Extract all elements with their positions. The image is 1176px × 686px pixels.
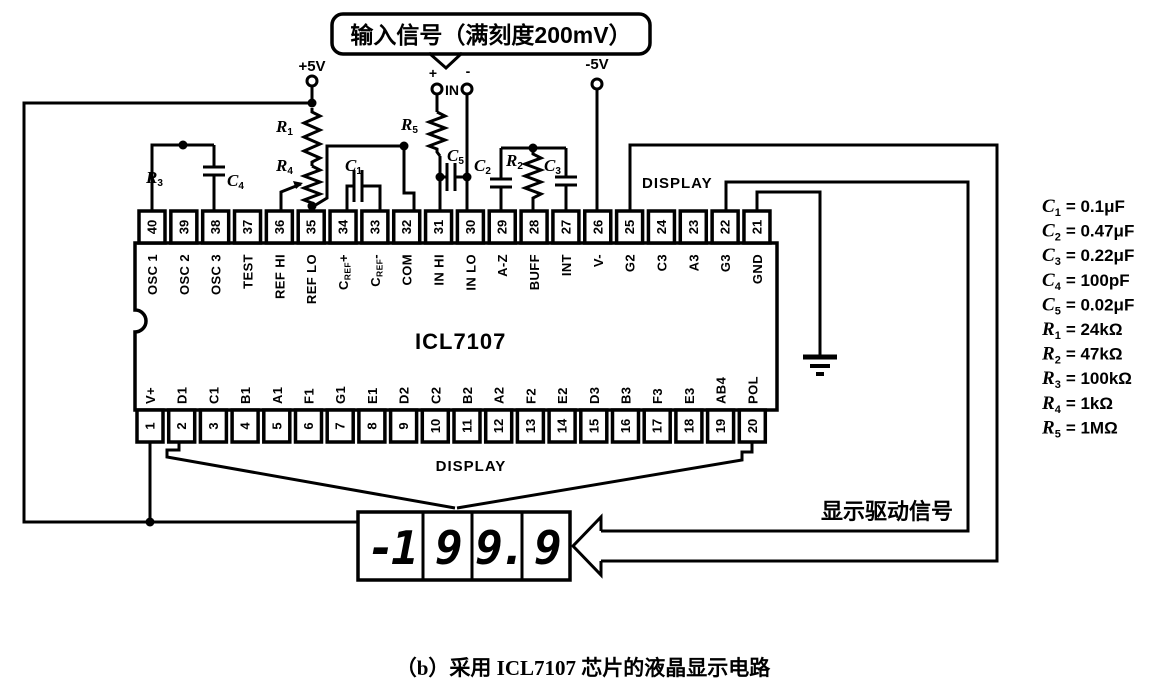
- svg-text:15: 15: [586, 419, 601, 433]
- junction-dot: [400, 142, 409, 151]
- svg-text:26: 26: [590, 220, 605, 234]
- svg-text:REF HI: REF HI: [272, 254, 287, 299]
- svg-text:E2: E2: [555, 387, 570, 404]
- svg-text:1: 1: [143, 422, 158, 429]
- svg-text:16: 16: [618, 419, 633, 433]
- value-row-c3: C3= 0.22μF: [1042, 245, 1134, 268]
- svg-text:23: 23: [686, 220, 701, 234]
- junction-dot: [308, 99, 317, 108]
- svg-text:C2: C2: [428, 387, 443, 404]
- value-row-r5: R5= 1MΩ: [1041, 417, 1118, 440]
- svg-text:B3: B3: [619, 387, 634, 404]
- ic-name: ICL7107: [415, 329, 506, 354]
- svg-text:D2: D2: [397, 387, 412, 404]
- ic-icl7107: ICL7107: [135, 243, 777, 410]
- svg-text:9: 9: [396, 422, 411, 429]
- svg-text:32: 32: [399, 220, 414, 234]
- svg-text:33: 33: [367, 220, 382, 234]
- svg-text:OSC 1: OSC 1: [145, 254, 160, 295]
- svg-text:COM: COM: [400, 254, 415, 286]
- display-digit-3: 9.: [475, 521, 522, 575]
- in-plus-label: +: [429, 65, 437, 81]
- svg-text:5: 5: [269, 422, 284, 429]
- svg-text:36: 36: [272, 220, 287, 234]
- svg-text:A2: A2: [492, 387, 507, 404]
- svg-text:F1: F1: [302, 388, 317, 404]
- svg-text:19: 19: [713, 419, 728, 433]
- svg-text:10: 10: [428, 419, 443, 433]
- plus5v-label: +5V: [298, 58, 325, 75]
- svg-text:D1: D1: [175, 387, 190, 404]
- svg-text:BUFF: BUFF: [527, 254, 542, 290]
- display-digit-2: 9: [435, 521, 461, 575]
- junction-dot: [146, 518, 155, 527]
- svg-text:OSC 2: OSC 2: [177, 254, 192, 295]
- svg-text:B2: B2: [460, 387, 475, 404]
- svg-text:G2: G2: [623, 254, 638, 272]
- label-r2: R2: [505, 151, 523, 172]
- wire-pin20-display: [457, 442, 752, 508]
- svg-text:B1: B1: [238, 387, 253, 404]
- junction-dot: [463, 173, 472, 182]
- label-r1: R1: [275, 117, 293, 138]
- value-row-r2: R2= 47kΩ: [1041, 344, 1122, 367]
- capacitor-c4: [203, 145, 225, 211]
- svg-text:V+: V+: [143, 387, 158, 404]
- svg-text:IN HI: IN HI: [432, 254, 447, 286]
- svg-text:4: 4: [238, 422, 253, 430]
- svg-text:GND: GND: [750, 254, 765, 284]
- in-label: IN: [445, 82, 459, 98]
- svg-text:14: 14: [555, 418, 570, 433]
- display-label-top: DISPLAY: [642, 175, 713, 192]
- ground-symbol-icon: [803, 357, 837, 374]
- junction-dot: [308, 202, 317, 211]
- wire-pin2-display: [167, 442, 455, 508]
- svg-text:E3: E3: [682, 387, 697, 404]
- in-minus-label: -: [466, 63, 471, 79]
- svg-text:C1: C1: [206, 387, 221, 404]
- figure-caption: （b）采用 ICL7107 芯片的液晶显示电路: [396, 656, 772, 680]
- svg-text:OSC 3: OSC 3: [209, 254, 224, 295]
- label-c2: C2: [474, 156, 491, 177]
- display-digit-1: -1: [367, 521, 414, 575]
- capacitor-c1: [347, 170, 380, 211]
- value-row-r4: R4= 1kΩ: [1041, 393, 1113, 416]
- label-c1: C1: [345, 156, 362, 177]
- in-minus-terminal-icon: [462, 84, 472, 94]
- svg-text:E1: E1: [365, 387, 380, 404]
- resistor-r2: [525, 148, 541, 211]
- component-values-list: C1= 0.1μFC2= 0.47μFC3= 0.22μFC4= 100pFC5…: [1041, 196, 1134, 440]
- svg-text:25: 25: [622, 220, 637, 234]
- circuit-diagram: 输入信号（满刻度200mV） +5V -5V + - IN: [0, 0, 1176, 686]
- display-digit-4: 9: [534, 521, 560, 575]
- svg-text:6: 6: [301, 422, 316, 429]
- svg-text:POL: POL: [745, 376, 760, 404]
- svg-text:A-Z: A-Z: [495, 254, 510, 277]
- svg-text:REF LO: REF LO: [304, 254, 319, 304]
- capacitor-c3: [555, 148, 577, 211]
- drive-signal-label: 显示驱动信号: [821, 499, 953, 524]
- svg-text:24: 24: [654, 219, 669, 234]
- svg-text:17: 17: [650, 419, 665, 433]
- resistor-r1: [304, 108, 320, 166]
- svg-text:20: 20: [745, 419, 760, 433]
- callout-label: 输入信号（满刻度200mV）: [350, 22, 631, 48]
- minus5v-label: -5V: [585, 56, 608, 73]
- label-c5: C5: [447, 146, 464, 167]
- svg-text:18: 18: [681, 419, 696, 433]
- svg-text:3: 3: [206, 422, 221, 429]
- svg-text:F3: F3: [650, 388, 665, 404]
- svg-text:30: 30: [463, 220, 478, 234]
- svg-text:35: 35: [304, 220, 319, 234]
- svg-text:28: 28: [527, 220, 542, 234]
- label-r3: R3: [145, 168, 163, 189]
- svg-text:34: 34: [336, 219, 351, 234]
- label-r4: R4: [275, 156, 293, 177]
- svg-text:A3: A3: [686, 254, 701, 271]
- svg-text:V-: V-: [591, 254, 606, 267]
- seven-segment-display: -1 9 9. 9: [358, 512, 570, 580]
- minus5v-terminal-icon: [592, 79, 602, 89]
- display-label-bottom: DISPLAY: [436, 458, 507, 475]
- ic-body: [135, 243, 777, 410]
- junction-dot: [179, 141, 188, 150]
- label-r5: R5: [400, 115, 418, 136]
- value-row-c4: C4= 100pF: [1042, 270, 1130, 293]
- svg-text:31: 31: [431, 220, 446, 234]
- svg-text:37: 37: [240, 220, 255, 234]
- value-row-r3: R3= 100kΩ: [1041, 368, 1132, 391]
- svg-text:A1: A1: [270, 387, 285, 404]
- svg-text:39: 39: [176, 220, 191, 234]
- value-row-c1: C1= 0.1μF: [1042, 196, 1125, 219]
- svg-text:22: 22: [718, 220, 733, 234]
- svg-text:TEST: TEST: [241, 254, 256, 289]
- drive-arrowhead-icon: [573, 517, 601, 575]
- svg-text:21: 21: [749, 220, 764, 234]
- svg-text:INT: INT: [559, 254, 574, 276]
- svg-text:40: 40: [145, 220, 160, 234]
- svg-text:27: 27: [558, 220, 573, 234]
- label-c3: C3: [544, 156, 561, 177]
- in-plus-terminal-icon: [432, 84, 442, 94]
- junction-dot: [529, 144, 538, 153]
- svg-text:AB4: AB4: [714, 376, 729, 404]
- svg-text:C3: C3: [654, 254, 669, 271]
- wire-com-drop: [404, 146, 414, 211]
- schematic-page: 输入信号（满刻度200mV） +5V -5V + - IN: [0, 0, 1176, 686]
- svg-text:13: 13: [523, 419, 538, 433]
- svg-text:G3: G3: [718, 254, 733, 272]
- svg-text:2: 2: [174, 422, 189, 429]
- svg-text:12: 12: [491, 419, 506, 433]
- value-row-c2: C2= 0.47μF: [1042, 221, 1134, 244]
- svg-text:8: 8: [364, 422, 379, 429]
- plus5v-terminal-icon: [307, 76, 317, 86]
- svg-text:G1: G1: [333, 386, 348, 404]
- svg-text:D3: D3: [587, 387, 602, 404]
- value-row-c5: C5= 0.02μF: [1042, 294, 1134, 317]
- wire-r4-wiper: [281, 184, 301, 211]
- value-row-r1: R1= 24kΩ: [1041, 319, 1122, 342]
- label-c4: C4: [227, 171, 244, 192]
- svg-text:IN LO: IN LO: [463, 254, 478, 291]
- svg-text:F2: F2: [523, 388, 538, 404]
- svg-text:11: 11: [460, 419, 475, 433]
- svg-text:29: 29: [495, 220, 510, 234]
- resistor-r5: [429, 112, 445, 156]
- svg-text:7: 7: [333, 422, 348, 429]
- svg-text:38: 38: [208, 220, 223, 234]
- junction-dot: [436, 173, 445, 182]
